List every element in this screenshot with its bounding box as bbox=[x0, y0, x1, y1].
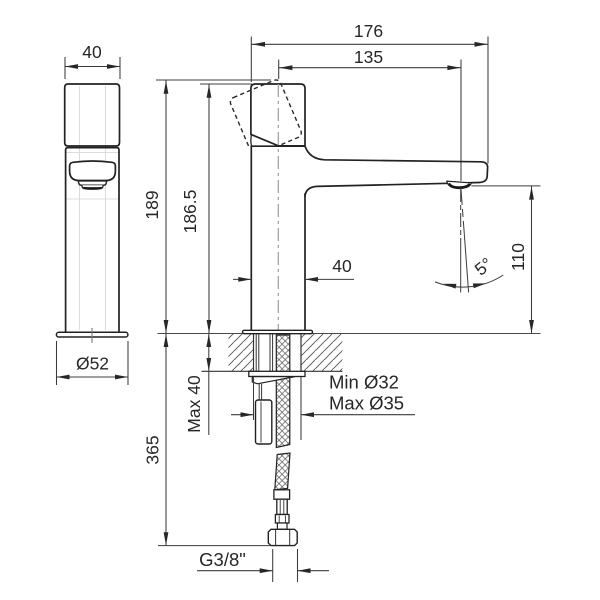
svg-text:365: 365 bbox=[143, 435, 163, 464]
svg-text:Min Ø32: Min Ø32 bbox=[329, 372, 399, 393]
svg-text:G3/8": G3/8" bbox=[199, 549, 246, 570]
svg-text:135: 135 bbox=[354, 47, 383, 67]
svg-text:110: 110 bbox=[508, 243, 528, 271]
svg-text:5°: 5° bbox=[471, 253, 497, 279]
svg-text:Max Ø35: Max Ø35 bbox=[329, 393, 404, 414]
svg-text:Ø52: Ø52 bbox=[76, 354, 109, 374]
svg-text:189: 189 bbox=[142, 190, 162, 219]
svg-text:40: 40 bbox=[82, 42, 102, 62]
svg-text:Max 40: Max 40 bbox=[184, 375, 204, 433]
svg-text:40: 40 bbox=[332, 256, 352, 276]
svg-text:186.5: 186.5 bbox=[180, 190, 200, 234]
svg-text:176: 176 bbox=[354, 21, 383, 41]
